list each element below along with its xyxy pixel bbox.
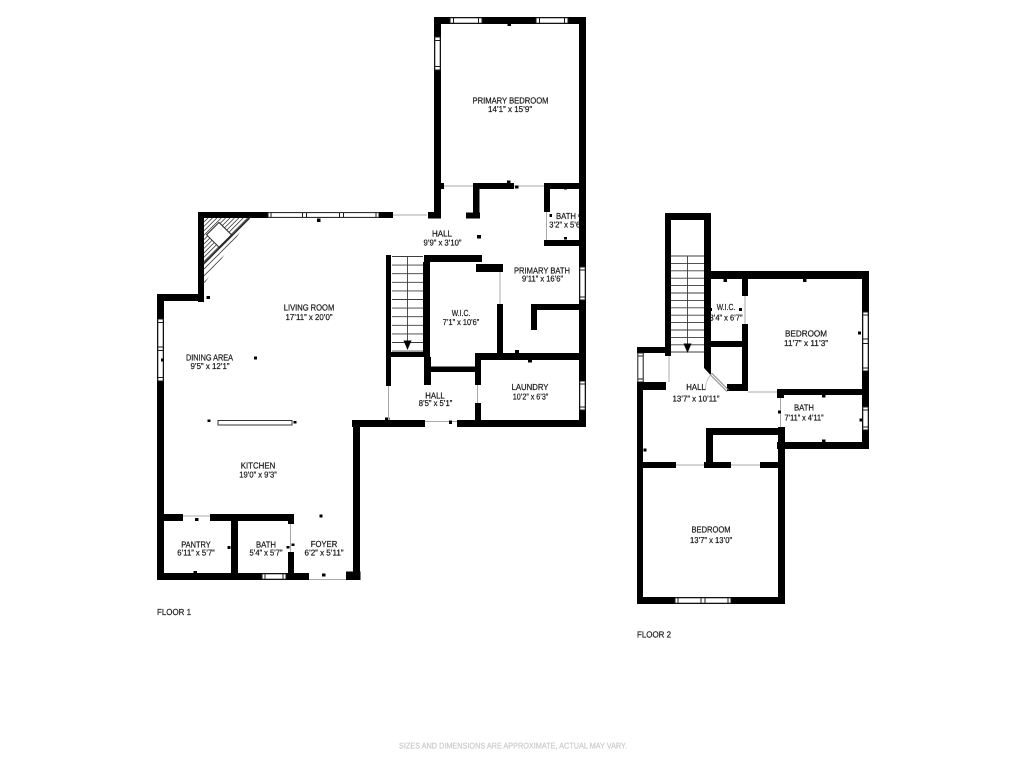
svg-text:6’2” x 5’11”: 6’2” x 5’11” [305, 548, 344, 558]
svg-text:10’2” x 6’3”: 10’2” x 6’3” [513, 392, 549, 402]
svg-text:3’4” x 6’7”: 3’4” x 6’7” [710, 313, 743, 323]
svg-text:3’2” x 5’6”: 3’2” x 5’6” [549, 220, 583, 230]
svg-text:9’11” x 16’6”: 9’11” x 16’6” [522, 274, 563, 284]
svg-text:9’5” x 12’1”: 9’5” x 12’1” [191, 361, 230, 371]
svg-text:14’1” x 15’9”: 14’1” x 15’9” [488, 104, 532, 114]
svg-text:7’11” x 4’11”: 7’11” x 4’11” [785, 413, 824, 423]
svg-text:19’0” x 9’3”: 19’0” x 9’3” [239, 470, 277, 480]
svg-text:LAUNDRY: LAUNDRY [512, 382, 549, 392]
svg-text:BATH: BATH [794, 403, 814, 413]
svg-text:8’5” x 5’1”: 8’5” x 5’1” [419, 398, 453, 408]
svg-text:W.I.C.: W.I.C. [717, 302, 736, 312]
svg-text:FLOOR 1: FLOOR 1 [157, 607, 191, 617]
svg-text:LIVING ROOM: LIVING ROOM [284, 303, 335, 313]
svg-text:FLOOR 2: FLOOR 2 [637, 630, 671, 640]
svg-text:HALL: HALL [686, 382, 706, 392]
svg-text:6’11” x 5’7”: 6’11” x 5’7” [177, 548, 215, 558]
svg-text:5’4” x 5’7”: 5’4” x 5’7” [250, 548, 283, 558]
svg-text:BEDROOM: BEDROOM [785, 329, 827, 339]
svg-text:BEDROOM: BEDROOM [692, 525, 731, 535]
svg-text:7’1” x 10’6”: 7’1” x 10’6” [443, 317, 480, 327]
svg-text:9’9” x 3’10”: 9’9” x 3’10” [424, 238, 462, 248]
svg-text:13’7” x 13’0”: 13’7” x 13’0” [690, 535, 732, 545]
svg-text:SIZES AND DIMENSIONS ARE APPRO: SIZES AND DIMENSIONS ARE APPROXIMATE, AC… [399, 741, 627, 751]
svg-text:11’7” x 11’3”: 11’7” x 11’3” [784, 338, 828, 348]
svg-text:17’11” x 20’0”: 17’11” x 20’0” [286, 312, 333, 322]
svg-text:13’7” x 10’11”: 13’7” x 10’11” [673, 394, 720, 404]
